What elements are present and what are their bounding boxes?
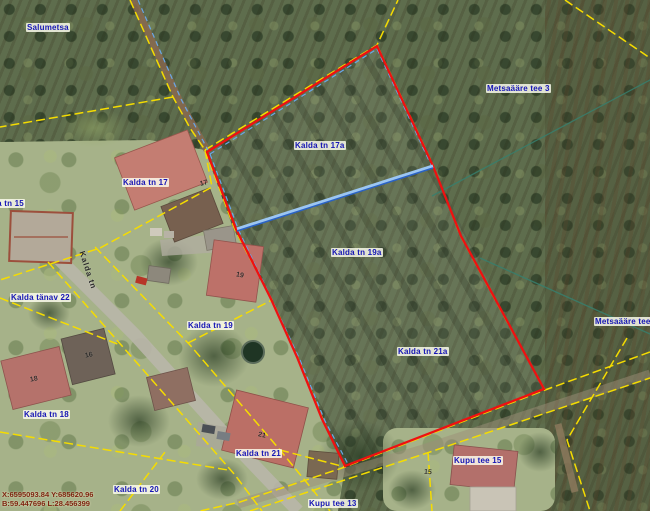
building-shed: [307, 451, 339, 480]
yard-object: [150, 228, 162, 236]
coordinate-bl: B:59.447696 L:28.456399: [2, 499, 93, 508]
cadastral-line: [120, 452, 165, 511]
parcel-label: Metsaääre tee 1: [594, 317, 650, 326]
division-line-casing: [237, 166, 433, 229]
parcel-label: Kupu tee 15: [453, 456, 503, 465]
zone-lines-layer: [432, 80, 650, 334]
cadastral-line: [0, 97, 173, 127]
parcel-label: Kalda tn 20: [113, 485, 160, 494]
zone-line: [432, 80, 650, 196]
parcel-label: Kalda tänav 22: [10, 293, 71, 302]
cadastral-line: [0, 432, 228, 470]
waterline-dashed: [377, 49, 432, 167]
building-kalda-19-house: [147, 367, 196, 410]
house-number: 15: [424, 469, 432, 477]
house-number: 21: [257, 431, 266, 439]
parcel-label: Salumetsa: [26, 23, 70, 32]
parcel-label: Kalda tn 15: [0, 199, 25, 208]
parcel-label: Kalda tn 17a: [294, 141, 346, 150]
cadastral-line: [428, 452, 432, 511]
building-kupu-15: [450, 445, 518, 491]
division-line: [237, 166, 433, 231]
parcel-label: Kalda tn 18: [23, 410, 70, 419]
parcel-label: Kalda tn 19: [187, 321, 234, 330]
parcel-label: Kalda tn 17: [122, 178, 169, 187]
cadastral-line: [377, 45, 545, 390]
cadastral-line: [565, 0, 650, 58]
house-number: 19: [235, 271, 244, 279]
coordinate-xy: X:6595093.84 Y:685620.96: [2, 490, 93, 499]
building-kalda-19a: [206, 240, 263, 302]
trampoline: [242, 341, 264, 363]
yard-object: [164, 231, 174, 238]
division-line-core: [237, 168, 433, 231]
parcel-label: Kalda tn 21a: [397, 347, 449, 356]
map-vector-overlay: [0, 0, 650, 511]
waterline-dashed: [210, 49, 377, 154]
building-shed: [147, 266, 171, 284]
parcel-label: Metsaääre tee 3: [486, 84, 551, 93]
parcel-label: Kupu tee 13: [308, 499, 358, 508]
coordinate-readout: X:6595093.84 Y:685620.96 B:59.447696 L:2…: [2, 490, 93, 508]
parcel-label: Kalda tn 21: [235, 449, 282, 458]
red-car: [135, 276, 147, 286]
parcel-label: Kalda tn 19a: [331, 248, 383, 257]
cadastral-lines-layer: [0, 0, 650, 511]
map-viewport[interactable]: SalumetsaKalda tn 15Kalda tn 17Kalda tn …: [0, 0, 650, 511]
building-kupu-15-annex: [470, 487, 516, 511]
cadastral-line: [250, 378, 650, 511]
cadastral-line: [205, 0, 398, 150]
